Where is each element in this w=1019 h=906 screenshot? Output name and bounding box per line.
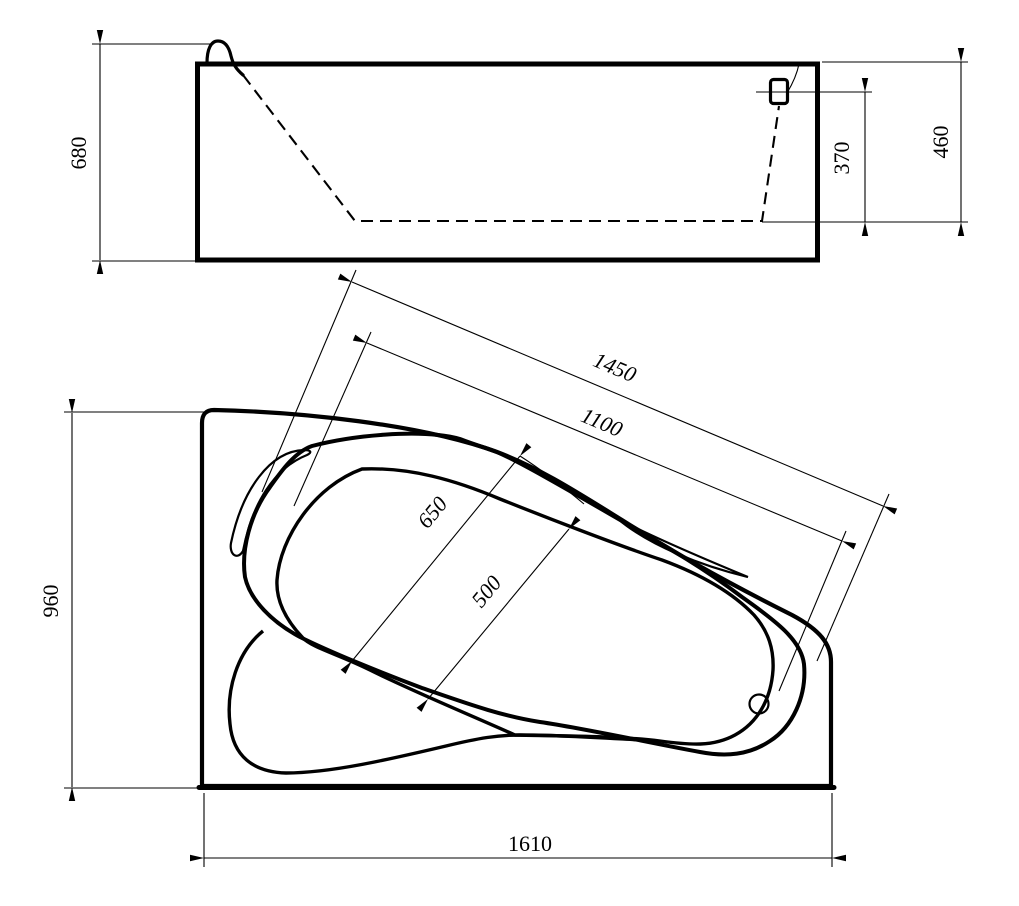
dimension-line	[352, 456, 520, 661]
dimension-line	[428, 529, 569, 699]
extension-line	[779, 531, 846, 691]
plan-view: 1450 1100 650 500 960	[38, 270, 889, 867]
dimension-370-label: 370	[829, 142, 854, 175]
dimension-1610: 1610	[204, 793, 832, 867]
dimension-1610-label: 1610	[508, 831, 552, 856]
dimension-960-label: 960	[38, 585, 63, 618]
extension-line	[262, 270, 356, 492]
drawing-sheet: 680 370 460	[0, 0, 1019, 906]
side-view: 680 370 460	[66, 41, 968, 261]
bathtub-technical-drawing: 680 370 460	[0, 0, 1019, 906]
side-view-outline	[198, 64, 818, 260]
bowl-hidden-contour	[243, 75, 779, 221]
dimension-500: 500	[428, 529, 569, 699]
headrest-pad	[231, 450, 311, 556]
dimension-650-label: 650	[412, 492, 452, 533]
extension-line	[817, 494, 889, 661]
dimension-680-label: 680	[66, 137, 91, 170]
dimension-680: 680	[66, 44, 211, 261]
dimension-650: 650	[352, 456, 520, 661]
dimension-1450-label: 1450	[590, 347, 640, 387]
headrest-bump-profile	[207, 41, 243, 75]
rim-outer-contour	[244, 434, 804, 755]
dimension-1450: 1450	[262, 270, 889, 661]
dimension-1100-label: 1100	[578, 402, 627, 442]
dimension-line	[352, 282, 883, 506]
dimension-370: 370	[756, 92, 872, 222]
dimension-1100: 1100	[294, 332, 846, 691]
dimension-500-label: 500	[466, 571, 506, 612]
dimension-460-label: 460	[928, 126, 953, 159]
rim-inner-contour	[277, 469, 773, 744]
dimension-960: 960	[38, 412, 207, 788]
extension-line	[294, 332, 371, 506]
